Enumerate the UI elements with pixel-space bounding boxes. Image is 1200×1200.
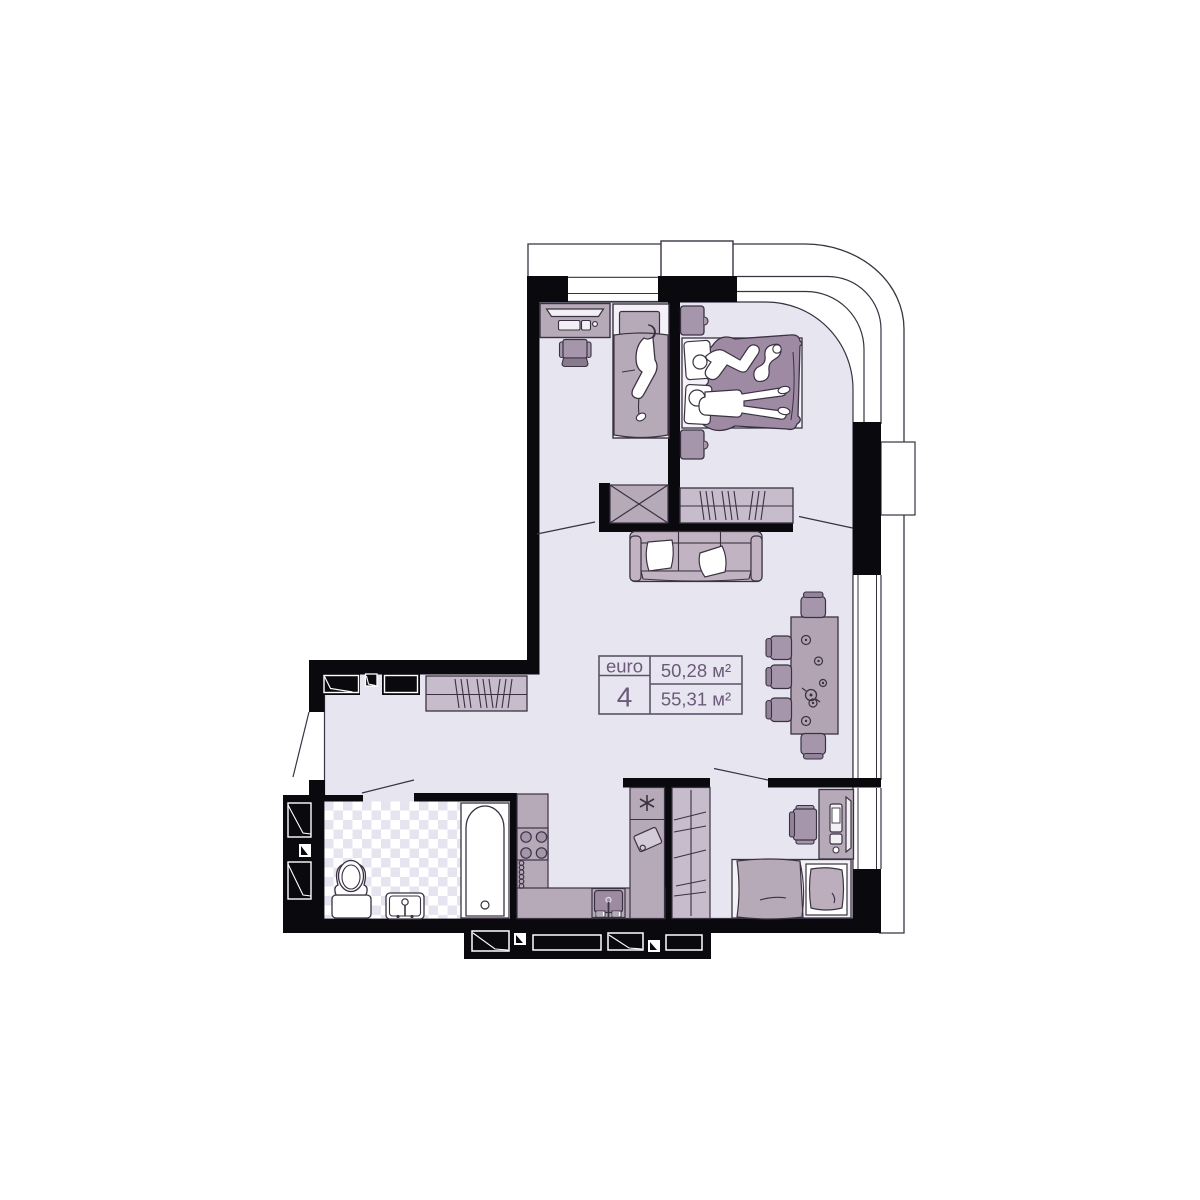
svg-text:55,31 м²: 55,31 м² <box>661 689 731 710</box>
svg-text:euro: euro <box>606 656 643 677</box>
svg-text:4: 4 <box>617 682 633 713</box>
svg-text:50,28 м²: 50,28 м² <box>661 660 731 681</box>
